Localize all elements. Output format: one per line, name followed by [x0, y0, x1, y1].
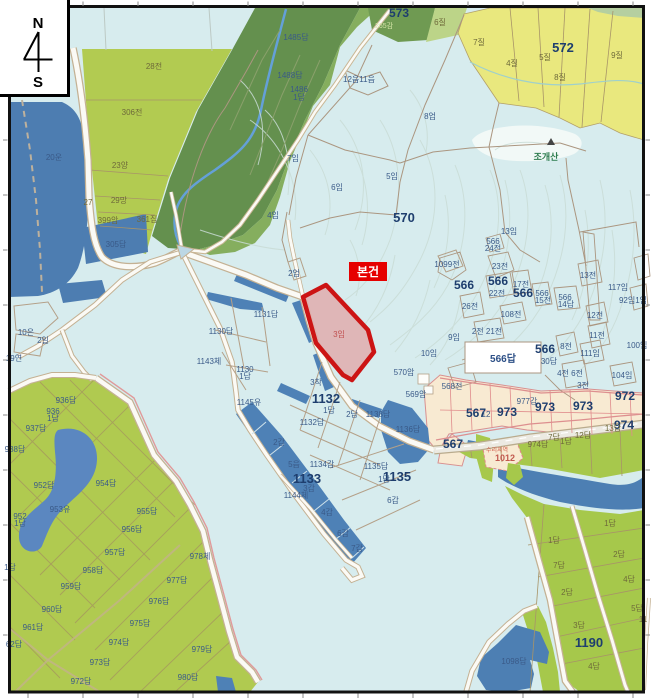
svg-text:7답: 7답 — [553, 560, 565, 570]
svg-text:566: 566 — [513, 286, 533, 300]
svg-text:5답: 5답 — [631, 603, 643, 613]
svg-text:952답: 952답 — [34, 480, 55, 490]
svg-text:1답: 1답 — [323, 405, 335, 415]
svg-text:1145유: 1145유 — [237, 398, 262, 407]
svg-text:955답: 955답 — [137, 506, 158, 516]
svg-text:1답: 1답 — [604, 518, 616, 528]
svg-text:10임: 10임 — [421, 349, 437, 358]
svg-text:5질: 5질 — [539, 53, 551, 62]
svg-text:117임: 117임 — [608, 283, 628, 292]
svg-text:979답: 979답 — [192, 644, 213, 654]
svg-text:3착: 3착 — [310, 378, 322, 387]
svg-text:4임: 4임 — [267, 211, 279, 220]
svg-text:20운: 20운 — [46, 153, 62, 162]
svg-text:2답: 2답 — [613, 549, 625, 559]
svg-text:24전: 24전 — [485, 243, 501, 253]
svg-text:4답: 4답 — [588, 661, 600, 671]
svg-text:6질: 6질 — [434, 18, 446, 27]
svg-text:8질: 8질 — [554, 73, 566, 82]
svg-text:1143체: 1143체 — [197, 356, 222, 366]
svg-text:22전: 22전 — [489, 288, 505, 298]
svg-text:3임: 3임 — [333, 330, 345, 339]
svg-text:3전: 3전 — [577, 380, 589, 390]
svg-text:399암: 399암 — [98, 215, 119, 225]
svg-text:978체: 978체 — [190, 551, 211, 561]
svg-text:957답: 957답 — [105, 547, 126, 557]
svg-text:975답: 975답 — [130, 618, 151, 628]
svg-text:1190: 1190 — [575, 635, 603, 650]
svg-text:305답: 305답 — [106, 239, 127, 249]
svg-text:4전 6전: 4전 6전 — [557, 368, 583, 378]
svg-text:1134갑: 1134갑 — [310, 459, 335, 469]
svg-text:23양: 23양 — [112, 161, 129, 170]
svg-text:972답: 972답 — [71, 676, 92, 686]
svg-text:1488답: 1488답 — [277, 70, 303, 80]
svg-text:26전: 26전 — [462, 301, 478, 311]
svg-text:1136답: 1136답 — [396, 424, 421, 434]
svg-text:27: 27 — [84, 198, 93, 207]
svg-text:N: N — [33, 15, 44, 32]
svg-text:2업: 2업 — [288, 269, 300, 278]
svg-text:570암: 570암 — [394, 367, 415, 377]
svg-text:5임: 5임 — [386, 172, 398, 181]
svg-text:1답: 1답 — [47, 413, 59, 423]
svg-text:2전 21전: 2전 21전 — [472, 326, 502, 336]
svg-text:7질: 7질 — [473, 38, 485, 47]
svg-text:566: 566 — [488, 274, 508, 288]
svg-text:567: 567 — [443, 437, 463, 451]
svg-text:568전: 568전 — [442, 381, 463, 391]
svg-text:956답: 956답 — [122, 524, 143, 534]
svg-text:566: 566 — [454, 278, 474, 292]
svg-text:6갑: 6갑 — [387, 495, 399, 505]
svg-text:958답: 958답 — [83, 565, 104, 575]
svg-text:566: 566 — [535, 342, 555, 356]
svg-text:9질: 9질 — [611, 51, 623, 60]
svg-text:977감: 977감 — [517, 396, 538, 406]
svg-text:936답: 936답 — [56, 395, 77, 405]
svg-text:4질: 4질 — [506, 59, 518, 68]
svg-text:15전: 15전 — [535, 295, 551, 305]
svg-text:938답: 938답 — [5, 444, 26, 454]
svg-text:1132답: 1132답 — [300, 417, 325, 427]
svg-text:10은: 10은 — [18, 328, 34, 337]
svg-text:28전: 28전 — [146, 61, 162, 71]
svg-text:4답: 4답 — [623, 574, 635, 584]
svg-text:4갑: 4갑 — [321, 507, 333, 517]
svg-text:959답: 959답 — [61, 581, 82, 591]
svg-text:12읍11읍: 12읍11읍 — [343, 75, 375, 84]
svg-text:974답: 974답 — [109, 637, 130, 647]
svg-text:23전: 23전 — [492, 261, 508, 271]
svg-text:972: 972 — [615, 389, 635, 403]
svg-text:12: 12 — [482, 410, 491, 419]
svg-text:572: 572 — [552, 40, 574, 55]
svg-text:566답: 566답 — [490, 353, 517, 365]
svg-text:973: 973 — [573, 399, 593, 413]
svg-text:11전: 11전 — [589, 330, 605, 340]
svg-text:13답: 13답 — [605, 423, 622, 433]
svg-text:1답: 1답 — [239, 371, 251, 381]
svg-text:2갑: 2갑 — [273, 437, 285, 447]
svg-text:973답: 973답 — [90, 657, 111, 667]
svg-text:1098답: 1098답 — [501, 656, 527, 666]
svg-text:1144체: 1144체 — [284, 490, 309, 500]
svg-text:30답: 30답 — [541, 356, 558, 366]
svg-text:573: 573 — [389, 6, 409, 20]
svg-text:29망: 29망 — [111, 195, 128, 205]
svg-text:104임: 104임 — [612, 371, 633, 380]
svg-text:1답: 1답 — [548, 535, 560, 545]
svg-text:1답: 1답 — [293, 92, 305, 102]
svg-text:1답: 1답 — [14, 518, 26, 528]
svg-text:111임: 111임 — [580, 349, 600, 358]
svg-text:265감: 265감 — [375, 22, 394, 30]
svg-text:7임: 7임 — [287, 154, 299, 163]
svg-text:9임: 9임 — [448, 333, 460, 342]
svg-text:6갑: 6갑 — [337, 528, 349, 538]
svg-text:7답: 7답 — [548, 432, 560, 442]
svg-text:973: 973 — [497, 405, 517, 419]
svg-text:7갑: 7갑 — [351, 543, 363, 553]
svg-text:1131답: 1131답 — [254, 309, 279, 319]
svg-text:2답: 2답 — [561, 587, 573, 597]
svg-text:954답: 954답 — [96, 478, 117, 488]
svg-text:2일: 2일 — [37, 336, 49, 345]
svg-text:1답: 1답 — [560, 436, 572, 446]
svg-text:6임: 6임 — [331, 183, 343, 192]
svg-text:937답: 937답 — [26, 423, 47, 433]
svg-text:8업: 8업 — [424, 112, 436, 121]
svg-text:수리지역: 수리지역 — [486, 446, 508, 454]
svg-text:13임: 13임 — [501, 227, 517, 236]
svg-text:570: 570 — [393, 210, 415, 225]
svg-text:조개산: 조개산 — [534, 151, 560, 162]
svg-text:1012: 1012 — [495, 453, 515, 463]
svg-text:569암: 569암 — [406, 389, 427, 399]
svg-text:1130답: 1130답 — [209, 326, 234, 336]
svg-text:980답: 980답 — [178, 672, 199, 682]
svg-text:306전: 306전 — [122, 107, 143, 117]
svg-text:3답: 3답 — [573, 620, 585, 630]
svg-text:960답: 960답 — [42, 604, 63, 614]
svg-text:14답: 14답 — [558, 299, 575, 309]
svg-text:977답: 977답 — [167, 575, 188, 585]
svg-text:1132: 1132 — [312, 391, 340, 406]
svg-text:1답: 1답 — [378, 474, 390, 484]
svg-text:976답: 976답 — [149, 596, 170, 606]
svg-text:5읍: 5읍 — [288, 460, 300, 469]
svg-text:1138답: 1138답 — [366, 409, 391, 419]
svg-text:1099전: 1099전 — [434, 259, 459, 269]
svg-text:2답: 2답 — [346, 409, 358, 419]
svg-text:961답: 961답 — [23, 622, 44, 632]
svg-text:S: S — [33, 74, 43, 91]
svg-text:108전: 108전 — [501, 309, 522, 319]
svg-text:974답: 974답 — [528, 439, 549, 449]
svg-text:12답: 12답 — [575, 430, 592, 440]
svg-text:13전: 13전 — [580, 270, 596, 280]
svg-text:1485답: 1485답 — [283, 32, 309, 42]
svg-text:361집: 361집 — [137, 214, 158, 224]
svg-text:본건: 본건 — [357, 264, 379, 279]
svg-text:973: 973 — [535, 400, 555, 414]
svg-text:12전: 12전 — [587, 310, 603, 320]
svg-text:8전: 8전 — [560, 341, 572, 351]
svg-text:953유: 953유 — [50, 505, 71, 514]
